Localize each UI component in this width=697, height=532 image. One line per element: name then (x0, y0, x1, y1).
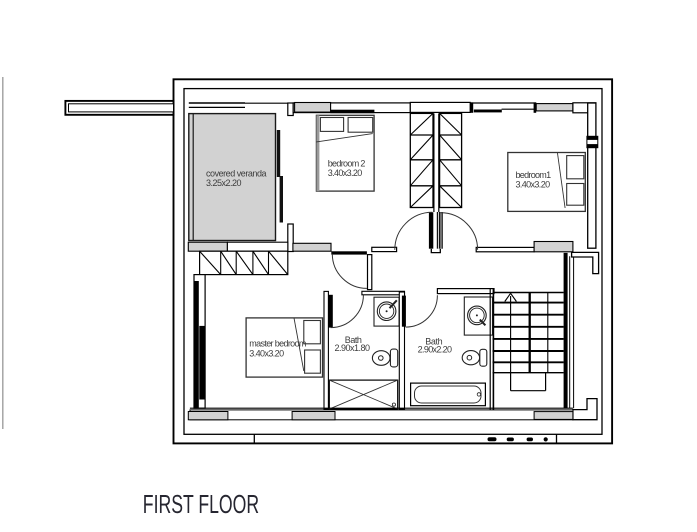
svg-text:FIRST FLOOR: FIRST FLOOR (143, 491, 259, 519)
svg-text:3.40x3.20: 3.40x3.20 (516, 180, 551, 190)
svg-text:3.40x3.20: 3.40x3.20 (328, 168, 363, 178)
svg-text:master bedroom: master bedroom (249, 338, 306, 348)
svg-text:2.90x1.80: 2.90x1.80 (335, 343, 371, 353)
svg-text:3.25x2.20: 3.25x2.20 (206, 178, 242, 188)
svg-text:bedroom1: bedroom1 (516, 170, 552, 180)
svg-text:2.90x2.20: 2.90x2.20 (418, 345, 452, 355)
svg-text:covered veranda: covered veranda (206, 168, 267, 178)
svg-text:3.40x3.20: 3.40x3.20 (249, 348, 284, 358)
